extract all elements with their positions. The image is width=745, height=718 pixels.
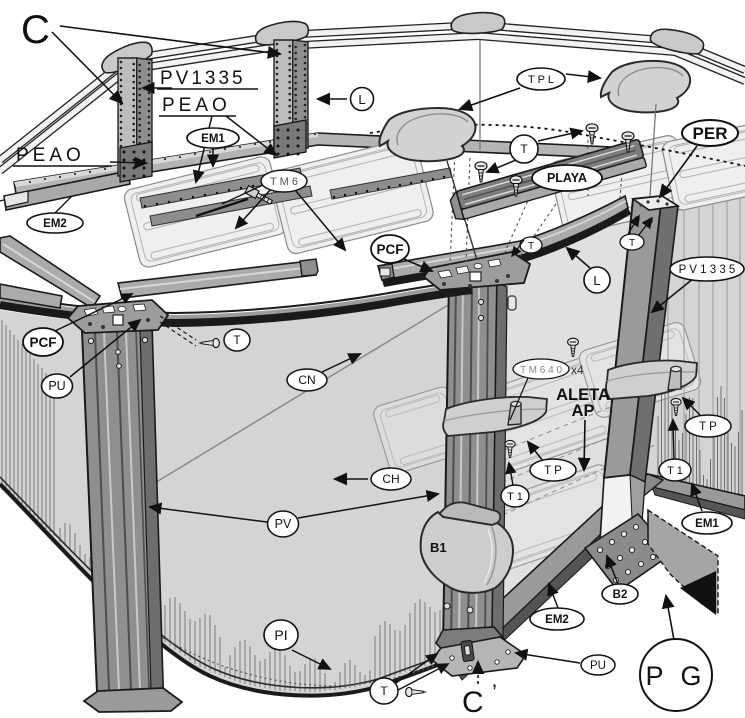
svg-text:PCF: PCF xyxy=(30,335,57,350)
svg-text:T: T xyxy=(528,241,534,252)
svg-text:PU: PU xyxy=(48,379,65,393)
svg-text:C: C xyxy=(21,8,50,52)
svg-text:T P: T P xyxy=(544,465,562,477)
svg-text:C: C xyxy=(462,686,484,718)
svg-text:’: ’ xyxy=(492,680,497,705)
svg-text:L: L xyxy=(593,273,600,288)
svg-text:AP: AP xyxy=(572,402,595,420)
svg-text:PV: PV xyxy=(275,517,292,531)
svg-text:EM2: EM2 xyxy=(43,218,67,230)
svg-text:PI: PI xyxy=(274,627,287,643)
svg-text:B1: B1 xyxy=(430,540,447,555)
svg-text:EM2: EM2 xyxy=(545,614,569,626)
svg-text:P G: P G xyxy=(645,661,706,691)
svg-text:L: L xyxy=(358,92,365,107)
svg-text:T M 6: T M 6 xyxy=(270,176,298,188)
svg-text:x4: x4 xyxy=(571,363,584,377)
svg-text:PCF: PCF xyxy=(377,242,404,257)
svg-text:T: T xyxy=(380,684,388,698)
svg-text:PER: PER xyxy=(693,124,728,143)
svg-text:PEAO: PEAO xyxy=(16,145,85,166)
svg-text:T P: T P xyxy=(699,421,717,433)
svg-text:P V 1 3 3 5: P V 1 3 3 5 xyxy=(679,264,736,276)
svg-text:CN: CN xyxy=(298,373,315,387)
svg-text:PU: PU xyxy=(590,660,606,672)
svg-text:PLAYA: PLAYA xyxy=(547,171,587,185)
svg-text:T: T xyxy=(629,238,635,249)
svg-text:CH: CH xyxy=(382,472,399,486)
svg-text:T: T xyxy=(520,142,528,156)
svg-text:EM1: EM1 xyxy=(201,133,225,145)
svg-text:B2: B2 xyxy=(613,589,628,601)
svg-text:T 1: T 1 xyxy=(667,465,683,477)
svg-text:T: T xyxy=(233,335,240,347)
svg-text:PV1335: PV1335 xyxy=(160,68,246,89)
svg-text:T P L: T P L xyxy=(528,74,554,86)
svg-text:EM1: EM1 xyxy=(695,518,719,530)
svg-text:T 1: T 1 xyxy=(507,491,523,503)
svg-text:T M 6 4 0: T M 6 4 0 xyxy=(520,365,562,376)
svg-text:PEAO: PEAO xyxy=(162,95,231,116)
